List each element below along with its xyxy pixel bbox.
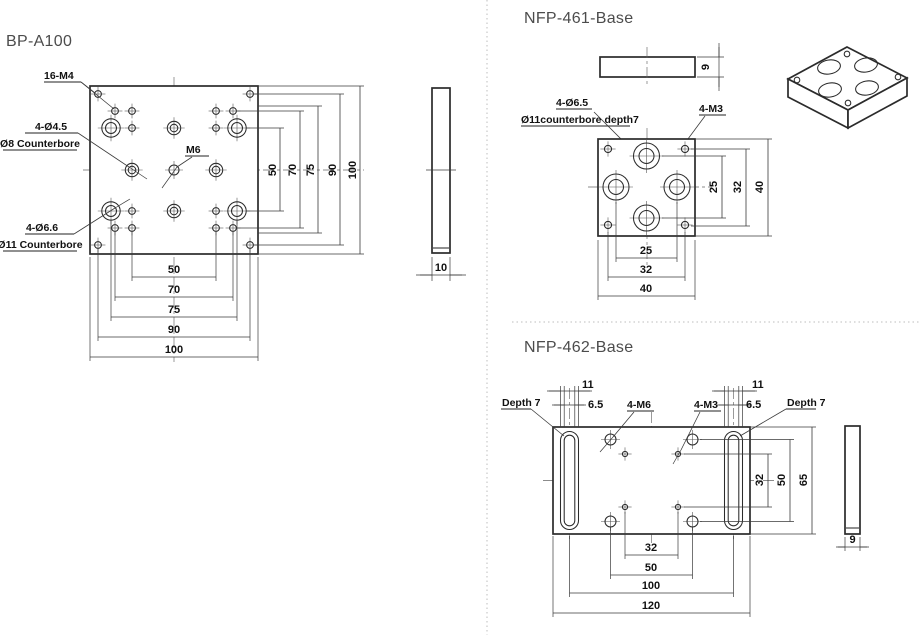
dim-label: 75 [168,304,180,316]
catalog-page: BP-A100 16-M4 4-Ø4.5 Ø8 Counterbore M6 [0,0,920,635]
dim-label: 25 [640,245,652,257]
dim-label: 70 [287,164,299,176]
svg-text:4-M3: 4-M3 [699,103,723,115]
dim-label: 70 [168,284,180,296]
svg-text:Ø11counterbore depth7: Ø11counterbore depth7 [521,114,639,126]
dim-label: 75 [305,164,317,176]
n462-plate-outline [553,427,750,534]
svg-text:16-M4: 16-M4 [44,70,74,82]
dim-label: 40 [754,181,766,193]
dim-label: 11 [582,379,594,391]
dim-label-thickness: 9 [700,64,712,70]
dim-label: 11 [752,379,764,391]
bp-side-view: 10 [416,88,466,281]
dim-label: 65 [798,474,810,486]
svg-text:4-Ø4.5: 4-Ø4.5 [35,121,67,133]
dim-label: 50 [168,264,180,276]
svg-text:4-M3: 4-M3 [694,399,718,411]
dim-label: 32 [732,181,744,193]
svg-text:Ø11 Counterbore: Ø11 Counterbore [0,239,83,251]
dim-label: 50 [267,164,279,176]
bp-a100-drawing: BP-A100 16-M4 4-Ø4.5 Ø8 Counterbore M6 [0,33,466,362]
svg-text:Ø8 Counterbore: Ø8 Counterbore [0,138,80,150]
svg-text:M6: M6 [186,144,201,156]
dim-label: 40 [640,283,652,295]
part-title-nfp-462: NFP-462-Base [524,339,633,356]
dim-label: 6.5 [588,399,603,411]
dim-label: 100 [642,580,660,592]
dim-label: 100 [165,344,183,356]
dim-label: 32 [645,542,657,554]
part-title-bp-a100: BP-A100 [6,33,72,50]
part-title-nfp-461: NFP-461-Base [524,10,633,27]
dim-label: 25 [708,181,720,193]
dim-label: 50 [776,474,788,486]
dim-label: 50 [645,562,657,574]
svg-text:4-Ø6.6: 4-Ø6.6 [26,222,58,234]
dim-label: 32 [754,474,766,486]
n462-side-view: 9 [836,426,869,551]
dim-label: 32 [640,264,652,276]
nfp-462-drawing: NFP-462-Base 11 [501,339,869,617]
technical-drawing-canvas: BP-A100 16-M4 4-Ø4.5 Ø8 Counterbore M6 [0,0,920,635]
svg-text:Depth 7: Depth 7 [502,397,541,409]
svg-text:4-Ø6.5: 4-Ø6.5 [556,97,588,109]
dim-label-thickness: 9 [849,534,855,546]
dim-label: 90 [327,164,339,176]
svg-text:Depth 7: Depth 7 [787,397,826,409]
dim-label: 100 [347,161,359,179]
n461-isometric-view [788,47,907,128]
dim-label: 120 [642,600,660,612]
dim-label: 6.5 [746,399,761,411]
dim-label: 90 [168,324,180,336]
n462-dimensions-top: 11 6.5 11 6.5 [547,379,764,427]
n461-side-view: 9 [600,43,724,91]
dim-label-thickness: 10 [435,262,447,274]
svg-text:4-M6: 4-M6 [627,399,651,411]
nfp-461-drawing: NFP-461-Base 9 4-Ø6 [521,10,907,300]
